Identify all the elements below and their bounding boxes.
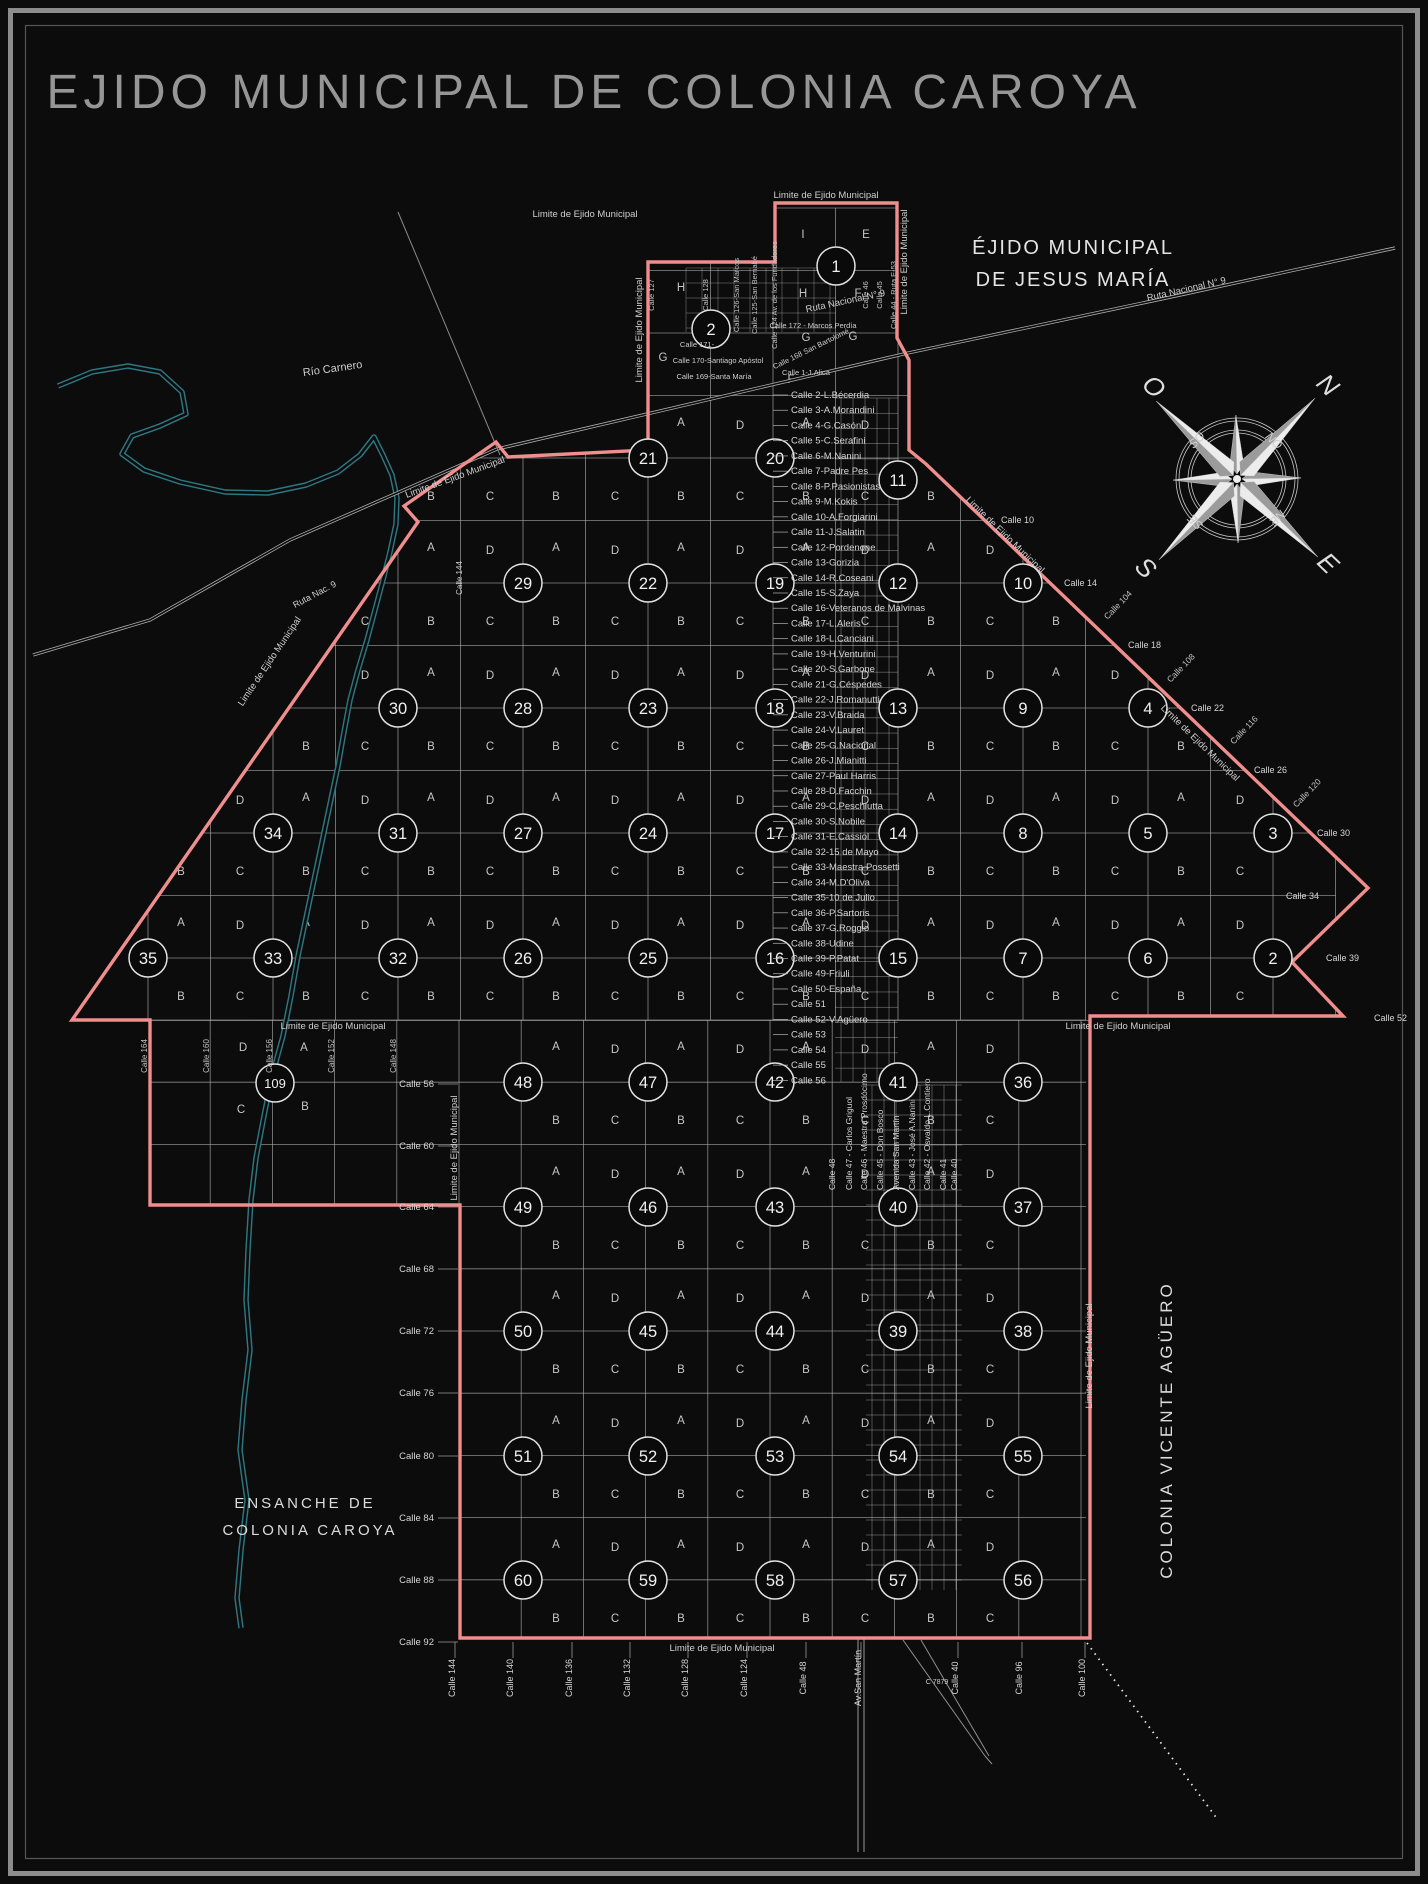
- block-number: 9: [1018, 700, 1027, 718]
- street-label: Calle 126-San Marcos: [732, 258, 741, 332]
- page-title: EJIDO MUNICIPAL DE COLONIA CAROYA: [47, 66, 1142, 119]
- block-number: 51: [514, 1448, 532, 1466]
- block-number: 28: [514, 700, 532, 718]
- quadrant-letter: B: [552, 1489, 560, 1501]
- quadrant-letter: C: [611, 1613, 619, 1625]
- quadrant-letter: C: [986, 741, 994, 753]
- street-label: Calle 68: [399, 1264, 434, 1275]
- quadrant-letter: C: [611, 991, 619, 1003]
- block-number: 3: [1268, 825, 1277, 843]
- quadrant-letter: C: [986, 1364, 994, 1376]
- quadrant-letter: A: [802, 1415, 810, 1427]
- block-number: 2: [706, 321, 715, 339]
- street-label: Calle 80: [399, 1451, 434, 1462]
- street-label: Calle 132: [622, 1659, 632, 1697]
- quadrant-letter: B: [677, 1364, 685, 1376]
- street-label: Calle 33-Maestra Possetti: [791, 862, 900, 873]
- quadrant-letter: C: [1236, 866, 1244, 878]
- quadrant-letter: C: [1111, 991, 1119, 1003]
- quadrant-letter: C: [361, 741, 369, 753]
- quadrant-letter: A: [677, 417, 685, 429]
- street-label: Calle 30: [1317, 828, 1350, 838]
- block-number: 36: [1014, 1074, 1032, 1092]
- sector-letter: C: [237, 1104, 245, 1116]
- street-label: Calle 41: [938, 1159, 948, 1190]
- street-label: Calle 152: [327, 1039, 336, 1073]
- quadrant-letter: D: [986, 1293, 994, 1305]
- street-label: Calle 100: [1077, 1659, 1087, 1697]
- street-label: Calle 8-P.Pasionistas: [791, 481, 880, 492]
- street-label: Calle 30-S.Nobile: [791, 816, 865, 827]
- block-number: 52: [639, 1448, 657, 1466]
- quadrant-letter: B: [1052, 741, 1060, 753]
- map-label: Calle 171-: [680, 340, 715, 349]
- quadrant-letter: A: [927, 1041, 935, 1053]
- quadrant-letter: A: [552, 792, 560, 804]
- street-label: Calle 25-G.Nacional: [791, 740, 876, 751]
- quadrant-letter: A: [677, 792, 685, 804]
- quadrant-letter: A: [927, 1539, 935, 1551]
- quadrant-letter: B: [802, 1613, 810, 1625]
- quadrant-letter: A: [677, 542, 685, 554]
- block-number: 15: [889, 950, 907, 968]
- street-label: Calle 64: [399, 1202, 434, 1213]
- block-number: 33: [264, 950, 282, 968]
- block-number: 56: [1014, 1572, 1032, 1590]
- quadrant-letter: D: [611, 545, 619, 557]
- street-label: Calle 38-Udine: [791, 938, 854, 949]
- map-label: Calle 144: [455, 561, 464, 595]
- quadrant-letter: B: [927, 1613, 935, 1625]
- quadrant-letter: D: [486, 795, 494, 807]
- quadrant-letter: A: [677, 1415, 685, 1427]
- quadrant-letter: B: [1052, 616, 1060, 628]
- quadrant-letter: A: [552, 1041, 560, 1053]
- quadrant-letter: D: [611, 1418, 619, 1430]
- street-label: Calle 36-P.Sartoris: [791, 908, 870, 919]
- quadrant-letter: C: [611, 1364, 619, 1376]
- block-number: 48: [514, 1074, 532, 1092]
- map-label: Limite de Ejido Municipal: [899, 209, 910, 314]
- quadrant-letter: D: [486, 545, 494, 557]
- quadrant-letter: A: [677, 1290, 685, 1302]
- sector-letter: A: [300, 1042, 308, 1054]
- quadrant-letter: B: [802, 1489, 810, 1501]
- street-label: Calle 136: [564, 1659, 574, 1697]
- quadrant-letter: A: [427, 542, 435, 554]
- quadrant-letter: A: [427, 792, 435, 804]
- street-label: Calle 128: [701, 279, 710, 311]
- map-label: Limite de Ejido Municipal: [669, 1643, 774, 1654]
- map-label: Limite de Ejido Municipal: [773, 190, 878, 201]
- street-label: Calle 76: [399, 1388, 434, 1399]
- street-label: Calle 72: [399, 1326, 434, 1337]
- street-label: Calle 15-S.Zaya: [791, 588, 860, 599]
- street-label: Calle 20-S.Garbone: [791, 664, 875, 675]
- sector-letter: E: [862, 229, 870, 241]
- block-number: 17: [766, 825, 784, 843]
- quadrant-letter: A: [552, 1166, 560, 1178]
- quadrant-letter: A: [802, 1166, 810, 1178]
- quadrant-letter: C: [611, 616, 619, 628]
- quadrant-letter: D: [1111, 920, 1119, 932]
- quadrant-letter: B: [552, 1240, 560, 1252]
- quadrant-letter: C: [736, 616, 744, 628]
- quadrant-letter: D: [611, 1044, 619, 1056]
- street-label: Calle 124 Av. de los Fundadores: [770, 241, 779, 349]
- quadrant-letter: D: [1111, 670, 1119, 682]
- quadrant-letter: C: [861, 616, 869, 628]
- quadrant-letter: D: [986, 1169, 994, 1181]
- block-number: 24: [639, 825, 657, 843]
- street-label: Calle 10: [1001, 515, 1034, 525]
- quadrant-letter: D: [611, 1542, 619, 1554]
- block-number: 26: [514, 950, 532, 968]
- street-label: Calle 21-G.Céspedes: [791, 679, 882, 690]
- quadrant-letter: B: [427, 866, 435, 878]
- sector-letter: B: [301, 1101, 309, 1113]
- quadrant-letter: B: [552, 866, 560, 878]
- quadrant-letter: D: [736, 670, 744, 682]
- block-number: 40: [889, 1199, 907, 1217]
- quadrant-letter: B: [552, 491, 560, 503]
- block-number: 4: [1143, 700, 1152, 718]
- quadrant-letter: A: [927, 1290, 935, 1302]
- quadrant-letter: D: [611, 1293, 619, 1305]
- map-label: Calle 1-J.Alica: [782, 368, 831, 377]
- quadrant-letter: C: [1111, 741, 1119, 753]
- street-label: Calle 156: [265, 1039, 274, 1073]
- quadrant-letter: B: [302, 991, 310, 1003]
- street-label: Calle 127: [647, 279, 656, 311]
- block-number: 35: [139, 950, 157, 968]
- quadrant-letter: D: [486, 920, 494, 932]
- quadrant-letter: D: [861, 1293, 869, 1305]
- street-label: Calle 39: [1326, 953, 1359, 963]
- quadrant-letter: B: [677, 991, 685, 1003]
- sector-letter: H: [799, 288, 807, 300]
- quadrant-letter: A: [427, 917, 435, 929]
- quadrant-letter: D: [986, 1542, 994, 1554]
- quadrant-letter: A: [552, 667, 560, 679]
- block-number: 109: [264, 1076, 286, 1091]
- quadrant-letter: B: [427, 991, 435, 1003]
- block-number: 25: [639, 950, 657, 968]
- street-label: Calle 2-L.Bécerdia: [791, 390, 870, 401]
- street-label: Calle 49-Friuli: [791, 969, 850, 980]
- block-number: 45: [639, 1323, 657, 1341]
- quadrant-letter: A: [802, 1539, 810, 1551]
- street-label: Calle 13-Gorizia: [791, 558, 860, 569]
- quadrant-letter: C: [736, 491, 744, 503]
- street-label: Calle 34: [1286, 891, 1319, 901]
- quadrant-letter: C: [986, 616, 994, 628]
- street-label: Calle 56: [399, 1079, 434, 1090]
- quadrant-letter: B: [427, 741, 435, 753]
- quadrant-letter: C: [486, 616, 494, 628]
- street-label: Calle 26: [1254, 765, 1287, 775]
- street-label: Calle 31-E.Cassiol: [791, 832, 869, 843]
- street-label: Calle 28-D.Facchin: [791, 786, 872, 797]
- quadrant-letter: B: [1052, 991, 1060, 1003]
- street-label: Calle 6-M.Nanini: [791, 451, 861, 462]
- street-label: Calle 32-15 de Mayo: [791, 847, 879, 858]
- street-label: Calle 52-V.Agüero: [791, 1014, 868, 1025]
- block-number: 30: [389, 700, 407, 718]
- map-label: Limite de Ejido Municipal: [1065, 1021, 1170, 1032]
- sector-letter: D: [239, 1042, 247, 1054]
- block-number: 23: [639, 700, 657, 718]
- quadrant-letter: A: [552, 1290, 560, 1302]
- quadrant-letter: D: [986, 670, 994, 682]
- quadrant-letter: B: [552, 991, 560, 1003]
- quadrant-letter: D: [861, 1542, 869, 1554]
- map-page: EJIDO MUNICIPAL DE COLONIA CAROYA ADBCAD…: [0, 0, 1428, 1884]
- block-number: 58: [766, 1572, 784, 1590]
- quadrant-letter: C: [611, 866, 619, 878]
- block-number: 32: [389, 950, 407, 968]
- block-number: 5: [1143, 825, 1152, 843]
- street-label: Calle 26-J.Mianitti: [791, 756, 867, 767]
- quadrant-letter: B: [677, 491, 685, 503]
- block-number: 6: [1143, 950, 1152, 968]
- quadrant-letter: D: [986, 1418, 994, 1430]
- quadrant-letter: B: [302, 866, 310, 878]
- quadrant-letter: D: [361, 670, 369, 682]
- quadrant-letter: A: [552, 542, 560, 554]
- area-title: ENSANCHE DE: [234, 1495, 375, 1512]
- quadrant-letter: A: [1177, 917, 1185, 929]
- quadrant-letter: B: [1052, 866, 1060, 878]
- quadrant-letter: D: [1236, 795, 1244, 807]
- quadrant-letter: D: [611, 670, 619, 682]
- area-title: DE JESUS MARÍA: [976, 268, 1171, 291]
- quadrant-letter: C: [236, 866, 244, 878]
- map-label: Calle 170-Santiago Apóstol: [673, 356, 764, 365]
- street-label: Calle 46 - Maestra Prosdócimo: [859, 1073, 869, 1190]
- map-label: Limite de Ejido Municipal: [634, 277, 645, 382]
- quadrant-letter: D: [736, 1044, 744, 1056]
- quadrant-letter: D: [986, 920, 994, 932]
- quadrant-letter: B: [927, 491, 935, 503]
- block-number: 29: [514, 575, 532, 593]
- quadrant-letter: C: [486, 866, 494, 878]
- quadrant-letter: B: [1177, 741, 1185, 753]
- block-number: 54: [889, 1448, 907, 1466]
- block-number: 21: [639, 450, 657, 468]
- street-label: Calle 125-San Bernabé: [750, 256, 759, 334]
- map-label: Limite de Ejido Municipal: [532, 209, 637, 220]
- quadrant-letter: C: [861, 991, 869, 1003]
- street-label: Calle 51: [791, 999, 826, 1010]
- quadrant-letter: A: [302, 792, 310, 804]
- quadrant-letter: A: [1177, 792, 1185, 804]
- street-label: Calle 5-C.Serafini: [791, 436, 865, 447]
- block-number: 46: [639, 1199, 657, 1217]
- quadrant-letter: D: [736, 1169, 744, 1181]
- street-label: Calle 52: [1374, 1013, 1407, 1023]
- quadrant-letter: B: [677, 866, 685, 878]
- street-label: Calle 60: [399, 1141, 434, 1152]
- street-label: Calle 96: [1014, 1661, 1024, 1694]
- quadrant-letter: B: [552, 1613, 560, 1625]
- quadrant-letter: C: [736, 991, 744, 1003]
- area-title: COLONIA VICENTE AGÜERO: [1157, 1281, 1176, 1578]
- quadrant-letter: D: [861, 1044, 869, 1056]
- quadrant-letter: D: [986, 545, 994, 557]
- quadrant-letter: D: [736, 545, 744, 557]
- quadrant-letter: B: [927, 866, 935, 878]
- quadrant-letter: D: [861, 420, 869, 432]
- street-label: Calle 16-Veteranos de Malvinas: [791, 603, 925, 614]
- quadrant-letter: B: [927, 1364, 935, 1376]
- street-label: Calle 27-Paul Harris: [791, 771, 876, 782]
- quadrant-letter: A: [677, 667, 685, 679]
- quadrant-letter: D: [986, 1044, 994, 1056]
- quadrant-letter: C: [611, 1115, 619, 1127]
- block-number: 57: [889, 1572, 907, 1590]
- sector-letter: I: [801, 229, 804, 241]
- quadrant-letter: C: [611, 1489, 619, 1501]
- street-label: Calle 44 - Ruta E-53: [889, 261, 898, 329]
- quadrant-letter: D: [611, 920, 619, 932]
- street-label: Calle 56: [791, 1075, 826, 1086]
- street-label: Av.San Martín: [853, 1650, 863, 1706]
- block-number: 14: [889, 825, 907, 843]
- quadrant-letter: B: [677, 741, 685, 753]
- quadrant-letter: B: [927, 1489, 935, 1501]
- quadrant-letter: D: [361, 795, 369, 807]
- street-label: Calle 24-V.Lauret: [791, 725, 864, 736]
- quadrant-letter: C: [861, 1240, 869, 1252]
- quadrant-letter: B: [552, 1115, 560, 1127]
- block-number: 43: [766, 1199, 784, 1217]
- street-label: Calle 39-P.Patat: [791, 954, 859, 965]
- street-label: Calle 55: [791, 1060, 826, 1071]
- block-number: 47: [639, 1074, 657, 1092]
- block-number: 53: [766, 1448, 784, 1466]
- street-label: Avenida San Martín: [891, 1115, 901, 1190]
- block-number: 38: [1014, 1323, 1032, 1341]
- block-number: 22: [639, 575, 657, 593]
- block-number: 12: [889, 575, 907, 593]
- quadrant-letter: C: [486, 991, 494, 1003]
- quadrant-letter: C: [986, 1115, 994, 1127]
- street-label: Calle 160: [202, 1039, 211, 1073]
- quadrant-letter: D: [1236, 920, 1244, 932]
- block-number: 2: [1268, 950, 1277, 968]
- street-label: Calle 48: [798, 1661, 808, 1694]
- quadrant-letter: C: [486, 491, 494, 503]
- quadrant-letter: A: [552, 1415, 560, 1427]
- quadrant-letter: D: [236, 920, 244, 932]
- street-label: Calle 42 - Osvaldo L.Contiero: [922, 1078, 932, 1190]
- area-title: ÉJIDO MUNICIPAL: [972, 236, 1174, 259]
- block-number: 39: [889, 1323, 907, 1341]
- quadrant-letter: C: [986, 1613, 994, 1625]
- block-number: 34: [264, 825, 282, 843]
- quadrant-letter: D: [736, 1293, 744, 1305]
- quadrant-letter: A: [1052, 667, 1060, 679]
- quadrant-letter: B: [677, 1240, 685, 1252]
- quadrant-letter: A: [1052, 792, 1060, 804]
- street-label: Calle 35-10 de Julio: [791, 893, 875, 904]
- quadrant-letter: A: [927, 542, 935, 554]
- quadrant-letter: A: [1052, 917, 1060, 929]
- block-number: 41: [889, 1074, 907, 1092]
- street-label: Calle 128: [680, 1659, 690, 1697]
- street-label: Calle 14: [1064, 578, 1097, 588]
- street-label: Calle 12-Pordenone: [791, 542, 876, 553]
- quadrant-letter: B: [802, 1364, 810, 1376]
- street-label: Calle 53: [791, 1030, 826, 1041]
- block-number: 8: [1018, 825, 1027, 843]
- block-number: 59: [639, 1572, 657, 1590]
- quadrant-letter: A: [927, 792, 935, 804]
- quadrant-letter: D: [611, 1169, 619, 1181]
- quadrant-letter: D: [611, 795, 619, 807]
- quadrant-letter: C: [1111, 866, 1119, 878]
- street-label: Calle 22-J.Romanutti: [791, 695, 880, 706]
- block-number: 31: [389, 825, 407, 843]
- street-label: Calle 164: [140, 1039, 149, 1073]
- quadrant-letter: D: [486, 670, 494, 682]
- street-label: Calle 3-A.Morandini: [791, 405, 874, 416]
- block-number: 1: [831, 258, 840, 276]
- street-label: Calle 54: [791, 1045, 826, 1056]
- quadrant-letter: D: [736, 420, 744, 432]
- quadrant-letter: B: [552, 741, 560, 753]
- street-label: Calle 47 - Carlos Griguol: [844, 1097, 854, 1190]
- map-label: Calle 169-Santa María: [676, 372, 752, 381]
- quadrant-letter: A: [677, 1041, 685, 1053]
- block-number: 42: [766, 1074, 784, 1092]
- quadrant-letter: C: [486, 741, 494, 753]
- quadrant-letter: B: [552, 616, 560, 628]
- block-number: 11: [889, 472, 906, 490]
- street-label: Calle 148: [389, 1039, 398, 1073]
- block-number: 50: [514, 1323, 532, 1341]
- quadrant-letter: C: [361, 991, 369, 1003]
- block-number: 60: [514, 1572, 532, 1590]
- quadrant-letter: B: [552, 1364, 560, 1376]
- quadrant-letter: C: [736, 1240, 744, 1252]
- quadrant-letter: A: [427, 667, 435, 679]
- quadrant-letter: C: [736, 1613, 744, 1625]
- quadrant-letter: B: [677, 1489, 685, 1501]
- sector-letter: H: [677, 282, 685, 294]
- block-number: 10: [1014, 575, 1032, 593]
- quadrant-letter: C: [736, 1489, 744, 1501]
- quadrant-letter: C: [736, 1364, 744, 1376]
- street-label: Calle 19-H.Venturini: [791, 649, 876, 660]
- quadrant-letter: C: [986, 991, 994, 1003]
- block-number: 13: [889, 700, 907, 718]
- block-number: 27: [514, 825, 532, 843]
- street-label: Calle 124: [739, 1659, 749, 1697]
- sector-letter: G: [802, 332, 811, 344]
- street-label: Calle 37-G.Roggio: [791, 923, 869, 934]
- street-label: Calle 18: [1128, 640, 1161, 650]
- street-label: Calle 140: [505, 1659, 515, 1697]
- block-number: 55: [1014, 1448, 1032, 1466]
- quadrant-letter: C: [236, 991, 244, 1003]
- quadrant-letter: C: [861, 491, 869, 503]
- quadrant-letter: C: [736, 1115, 744, 1127]
- quadrant-letter: A: [927, 917, 935, 929]
- street-label: Calle 4-G.Casón: [791, 420, 861, 431]
- quadrant-letter: A: [552, 917, 560, 929]
